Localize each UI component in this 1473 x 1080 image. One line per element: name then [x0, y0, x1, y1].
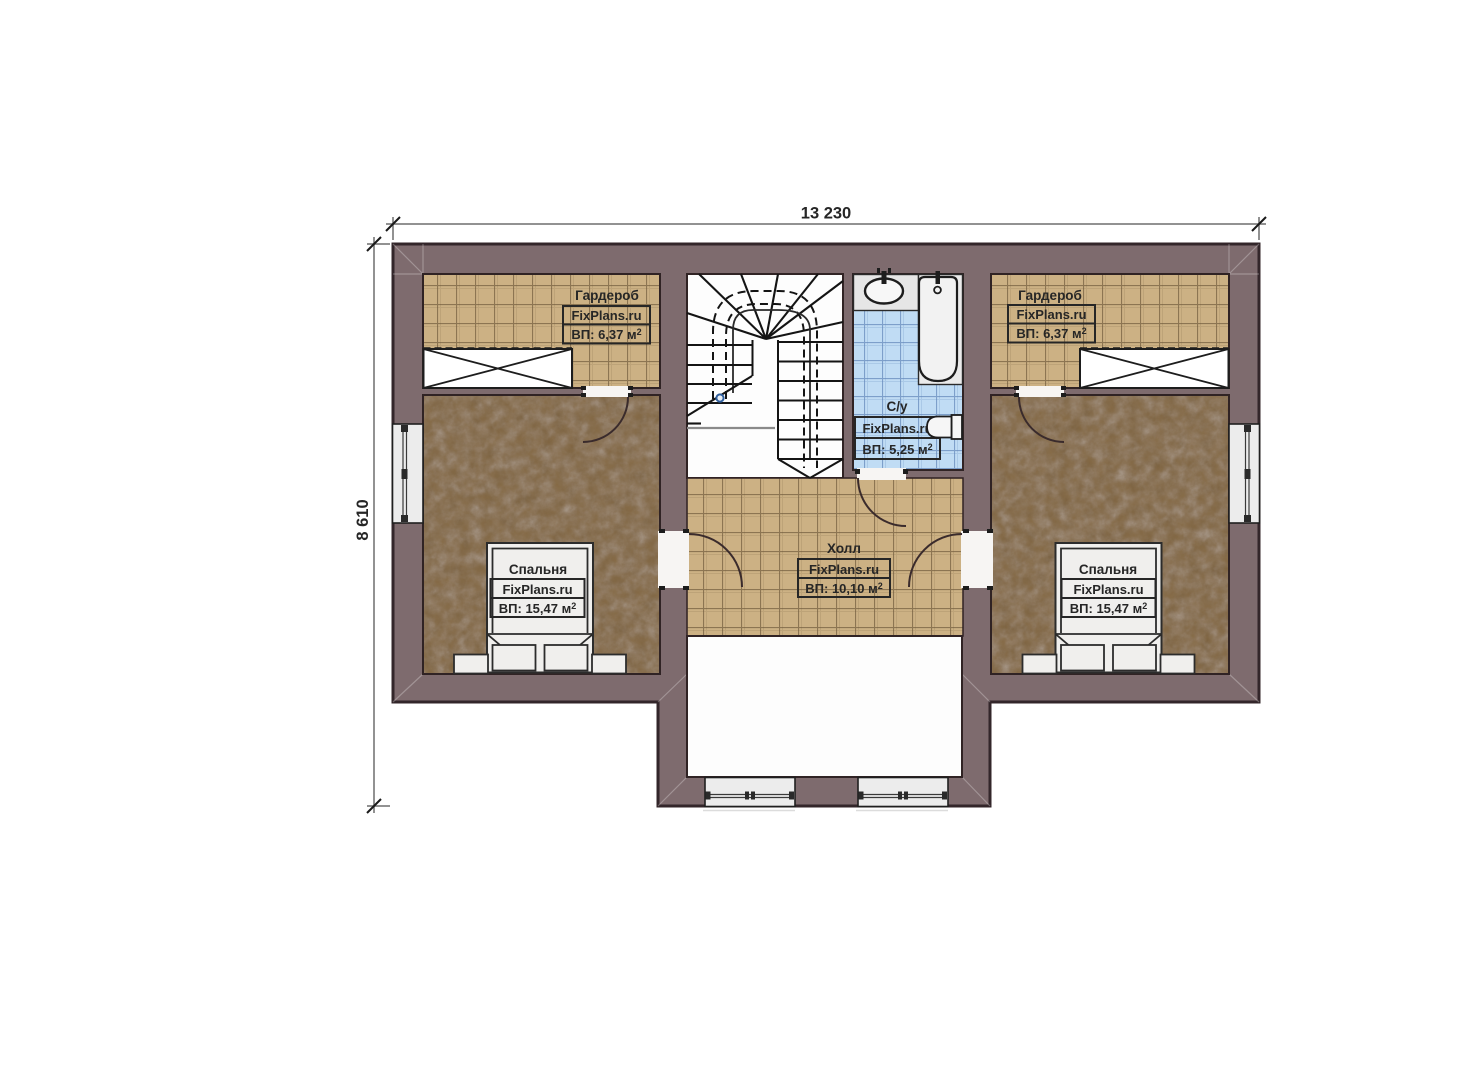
svg-text:FixPlans.ru: FixPlans.ru — [502, 582, 572, 597]
svg-text:ВП: 5,25 м2: ВП: 5,25 м2 — [862, 442, 932, 457]
svg-text:ВП: 15,47 м2: ВП: 15,47 м2 — [1070, 601, 1147, 616]
svg-text:Спальня: Спальня — [1079, 562, 1137, 577]
svg-text:ВП: 6,37 м2: ВП: 6,37 м2 — [571, 327, 641, 342]
svg-text:FixPlans.ru: FixPlans.ru — [1073, 582, 1143, 597]
svg-text:8 610: 8 610 — [354, 499, 372, 540]
svg-text:ВП: 6,37 м2: ВП: 6,37 м2 — [1016, 326, 1086, 341]
svg-text:FixPlans.ru: FixPlans.ru — [862, 421, 932, 436]
svg-text:FixPlans.ru: FixPlans.ru — [1016, 307, 1086, 322]
svg-text:ВП: 15,47 м2: ВП: 15,47 м2 — [499, 601, 576, 616]
svg-text:FixPlans.ru: FixPlans.ru — [571, 308, 641, 323]
svg-text:13 230: 13 230 — [801, 205, 851, 223]
svg-text:Гардероб: Гардероб — [575, 288, 639, 303]
svg-text:Холл: Холл — [827, 541, 861, 556]
svg-text:FixPlans.ru: FixPlans.ru — [809, 562, 879, 577]
svg-text:Спальня: Спальня — [509, 562, 567, 577]
svg-text:С/у: С/у — [886, 399, 908, 414]
svg-text:ВП: 10,10 м2: ВП: 10,10 м2 — [805, 581, 882, 596]
svg-text:Гардероб: Гардероб — [1018, 288, 1082, 303]
